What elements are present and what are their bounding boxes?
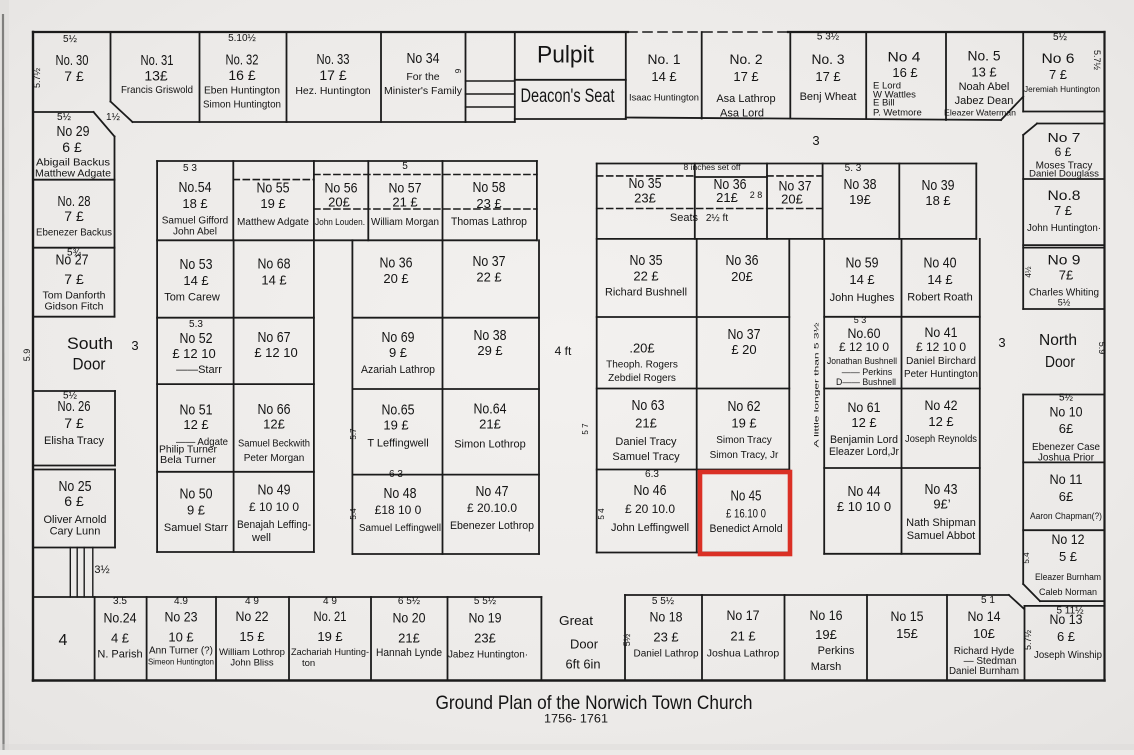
svg-text:Asa Lathrop: Asa Lathrop [716, 93, 775, 105]
svg-text:Oliver Arnold: Oliver Arnold [44, 514, 107, 526]
svg-text:Simon Huntington: Simon Huntington [203, 99, 281, 111]
svg-text:Great: Great [559, 613, 593, 628]
svg-text:No 46: No 46 [634, 482, 667, 499]
svg-text:Simon Lothrop: Simon Lothrop [454, 438, 526, 450]
svg-text:Bela Turner: Bela Turner [160, 455, 217, 466]
svg-text:3: 3 [131, 338, 138, 353]
svg-text:5: 5 [402, 161, 408, 172]
svg-text:Samuel Beckwith: Samuel Beckwith [238, 439, 310, 450]
svg-text:14 £: 14 £ [927, 272, 953, 287]
svg-text:No 17: No 17 [727, 607, 760, 623]
svg-text:No. 2: No. 2 [730, 51, 763, 67]
svg-text:No 16: No 16 [810, 607, 843, 623]
svg-text:7£: 7£ [1059, 268, 1074, 283]
svg-text:Robert Roath: Robert Roath [907, 292, 972, 304]
svg-text:5 3½: 5 3½ [817, 32, 840, 43]
svg-text:£ 10 10 0: £ 10 10 0 [837, 499, 891, 514]
svg-text:Caleb Norman: Caleb Norman [1039, 587, 1097, 597]
svg-text:No 37: No 37 [728, 326, 761, 343]
svg-text:21 £: 21 £ [392, 195, 418, 210]
svg-text:Elisha Tracy: Elisha Tracy [44, 435, 104, 447]
svg-text:No.65: No.65 [382, 402, 415, 419]
svg-text:Ebenezer Backus: Ebenezer Backus [36, 227, 112, 239]
svg-text:5.4: 5.4 [349, 508, 358, 520]
svg-text:5 £: 5 £ [1059, 549, 1078, 564]
svg-text:Matthew Adgate: Matthew Adgate [35, 168, 111, 180]
svg-text:Samuel Leffingwell: Samuel Leffingwell [359, 523, 441, 534]
svg-text:Joseph Winship: Joseph Winship [1034, 650, 1102, 661]
svg-text:No 15: No 15 [891, 608, 924, 624]
svg-text:Peter Huntington: Peter Huntington [904, 369, 978, 380]
svg-text:No 23: No 23 [165, 609, 198, 625]
svg-text:16 £: 16 £ [892, 65, 918, 80]
svg-text:Door: Door [570, 637, 599, 652]
svg-text:No. 30: No. 30 [56, 52, 89, 69]
svg-text:2½ ft: 2½ ft [706, 213, 728, 224]
svg-text:7 £: 7 £ [1054, 203, 1073, 218]
svg-text:No 22: No 22 [236, 608, 269, 624]
svg-text:John Huntington·: John Huntington· [1027, 223, 1101, 234]
svg-text:No. 26: No. 26 [58, 398, 91, 415]
svg-text:No 69: No 69 [382, 329, 415, 346]
svg-text:No 62: No 62 [728, 398, 761, 415]
svg-text:10 £: 10 £ [168, 630, 194, 645]
svg-text:£ 20: £ 20 [731, 342, 756, 357]
svg-text:6 3: 6 3 [389, 469, 403, 480]
svg-text:Azariah Lathrop: Azariah Lathrop [361, 364, 435, 376]
svg-text:Theoph. Rogers: Theoph. Rogers [606, 360, 678, 371]
svg-text:John Hughes: John Hughes [830, 292, 895, 304]
svg-text:No 57: No 57 [389, 180, 422, 196]
svg-text:No. 5: No. 5 [968, 48, 1001, 64]
svg-text:£ 20.10.0: £ 20.10.0 [467, 501, 517, 515]
svg-text:20£: 20£ [781, 192, 803, 207]
svg-text:21£: 21£ [716, 190, 738, 205]
svg-text:18 £: 18 £ [182, 196, 208, 211]
svg-text:Asa Lord: Asa Lord [720, 108, 764, 120]
svg-text:No 6: No 6 [1042, 50, 1075, 66]
svg-text:6ft 6in: 6ft 6in [566, 657, 601, 672]
svg-text:17 £: 17 £ [815, 69, 841, 84]
svg-text:Samuel Gifford: Samuel Gifford [162, 216, 229, 227]
svg-text:4½: 4½ [1024, 266, 1033, 277]
svg-text:No 63: No 63 [632, 397, 665, 414]
svg-text:5 3: 5 3 [854, 315, 867, 325]
svg-text:20£: 20£ [328, 195, 350, 210]
svg-text:Ann Turner (?): Ann Turner (?) [149, 646, 213, 657]
svg-text:18 £: 18 £ [925, 193, 951, 208]
svg-text:No 44: No 44 [848, 483, 881, 500]
svg-text:Hannah Lynde: Hannah Lynde [376, 647, 442, 659]
svg-text:Jeremiah Huntington: Jeremiah Huntington [1024, 84, 1100, 94]
svg-text:No 66: No 66 [258, 401, 291, 418]
svg-text:—— Perkins: —— Perkins [842, 367, 893, 377]
svg-text:Gidson Fitch: Gidson Fitch [45, 301, 104, 313]
svg-text:Hez. Huntington: Hez. Huntington [295, 85, 370, 97]
svg-text:No. 1: No. 1 [648, 51, 681, 67]
svg-text:4 9: 4 9 [245, 596, 259, 607]
svg-text:14 £: 14 £ [849, 272, 875, 287]
svg-text:No.64: No.64 [474, 401, 507, 418]
svg-text:Daniel Birchard: Daniel Birchard [906, 356, 976, 367]
svg-text:Nath Shipman: Nath Shipman [906, 517, 976, 529]
svg-text:4 £: 4 £ [111, 631, 130, 646]
svg-text:P. Wetmore: P. Wetmore [873, 108, 922, 119]
svg-text:John Abel: John Abel [173, 227, 217, 238]
svg-text:4 9: 4 9 [323, 596, 337, 607]
svg-text:No 68: No 68 [258, 256, 291, 273]
svg-text:.20£: .20£ [629, 341, 655, 356]
svg-text:No 39: No 39 [922, 177, 955, 194]
svg-text:14 £: 14 £ [651, 69, 677, 84]
svg-text:6£: 6£ [1059, 421, 1074, 436]
svg-text:21£: 21£ [635, 416, 657, 431]
svg-text:5½: 5½ [1058, 298, 1071, 308]
svg-text:Simon Tracy: Simon Tracy [716, 435, 772, 446]
svg-text:Eleazer Burnham: Eleazer Burnham [1035, 572, 1101, 582]
svg-text:No 36: No 36 [380, 255, 413, 272]
svg-text:——Starr: ——Starr [176, 364, 222, 376]
svg-text:£ 20 10.0: £ 20 10.0 [625, 502, 675, 516]
svg-text:6£: 6£ [1059, 489, 1074, 504]
svg-text:Simon Tracy, Jr: Simon Tracy, Jr [710, 450, 779, 461]
svg-text:No 47: No 47 [476, 483, 509, 500]
svg-text:9 £: 9 £ [187, 502, 206, 517]
svg-text:7 £: 7 £ [64, 68, 84, 84]
svg-text:£18 10 0: £18 10 0 [375, 503, 422, 517]
svg-text:12 £: 12 £ [183, 417, 209, 432]
svg-text:No 51: No 51 [180, 402, 213, 419]
svg-text:No.8: No.8 [1048, 187, 1081, 203]
svg-text:No 35: No 35 [630, 252, 663, 269]
svg-text:19 £: 19 £ [731, 416, 757, 431]
svg-text:A little longer than 5 3½: A little longer than 5 3½ [813, 321, 821, 447]
svg-text:3.5: 3.5 [113, 596, 127, 607]
svg-text:Thomas Lathrop: Thomas Lathrop [451, 216, 527, 228]
svg-text:14 £: 14 £ [261, 273, 287, 288]
svg-text:14 £: 14 £ [183, 273, 209, 288]
svg-text:9: 9 [454, 68, 463, 73]
svg-text:21£: 21£ [398, 631, 420, 646]
svg-text:£ 12 10: £ 12 10 [254, 345, 297, 360]
svg-text:7 £: 7 £ [64, 208, 84, 224]
svg-text:15£: 15£ [896, 626, 918, 641]
svg-text:No 11: No 11 [1050, 471, 1083, 487]
svg-text:South: South [67, 334, 113, 353]
svg-text:No 29: No 29 [57, 123, 90, 140]
svg-text:Zachariah Hunting-: Zachariah Hunting- [291, 647, 369, 658]
svg-text:3½: 3½ [94, 564, 109, 576]
svg-text:Marsh: Marsh [811, 661, 842, 673]
svg-text:20 £: 20 £ [383, 271, 409, 286]
svg-text:Jonathan Bushnell: Jonathan Bushnell [827, 356, 897, 366]
svg-text:12 £: 12 £ [851, 415, 877, 430]
svg-text:No 27: No 27 [56, 252, 89, 269]
svg-text:Ebenezer Case: Ebenezer Case [1032, 442, 1100, 453]
svg-text:5.7½: 5.7½ [1023, 630, 1033, 651]
svg-text:23 £: 23 £ [476, 196, 502, 211]
svg-text:No. 21: No. 21 [314, 608, 347, 624]
svg-text:£ 10 10 0: £ 10 10 0 [249, 500, 299, 514]
svg-text:Simeon Huntington: Simeon Huntington [148, 658, 214, 667]
svg-text:5.7: 5.7 [349, 428, 358, 440]
svg-text:5 1: 5 1 [981, 595, 995, 606]
svg-text:No 41: No 41 [925, 324, 958, 340]
svg-text:Zebdiel Rogers: Zebdiel Rogers [608, 373, 676, 384]
svg-text:6 £: 6 £ [62, 139, 82, 155]
svg-text:6 5½: 6 5½ [398, 596, 421, 607]
svg-text:John Leffingwell: John Leffingwell [611, 522, 689, 534]
svg-text:5.9: 5.9 [22, 349, 32, 362]
svg-text:Philip Turner: Philip Turner [159, 445, 218, 456]
svg-text:No 53: No 53 [180, 256, 213, 273]
svg-text:No 67: No 67 [258, 329, 291, 346]
svg-text:Door: Door [73, 355, 106, 374]
svg-text:No 61: No 61 [848, 399, 881, 415]
svg-text:5.7½: 5.7½ [32, 68, 42, 89]
svg-text:5.10½: 5.10½ [228, 33, 256, 44]
svg-text:Tom Carew: Tom Carew [164, 292, 220, 304]
svg-text:23£: 23£ [634, 191, 656, 206]
svg-text:No 42: No 42 [925, 397, 958, 413]
svg-text:No 52: No 52 [180, 330, 213, 347]
svg-text:No 38: No 38 [474, 327, 507, 344]
svg-text:29 £: 29 £ [477, 343, 503, 358]
svg-text:Daniel Lathrop: Daniel Lathrop [633, 649, 698, 660]
svg-text:Minister's Family: Minister's Family [384, 85, 463, 97]
svg-text:5.4: 5.4 [1022, 552, 1031, 564]
svg-text:21 £: 21 £ [730, 629, 756, 644]
svg-text:well: well [251, 532, 271, 544]
svg-text:6 £: 6 £ [1057, 629, 1076, 644]
svg-text:Cary Lunn: Cary Lunn [50, 526, 101, 538]
svg-text:19 £: 19 £ [260, 196, 286, 211]
svg-text:6 £: 6 £ [1055, 145, 1072, 159]
svg-text:Aaron Chapman(?): Aaron Chapman(?) [1030, 511, 1102, 521]
svg-text:Deacon's Seat: Deacon's Seat [521, 86, 616, 107]
svg-text:4.9: 4.9 [174, 596, 188, 607]
svg-text:9 £: 9 £ [389, 345, 408, 360]
svg-text:5 3: 5 3 [183, 163, 197, 174]
svg-text:Benedict Arnold: Benedict Arnold [710, 523, 783, 535]
svg-text:For the: For the [406, 71, 439, 83]
svg-text:Benj Wheat: Benj Wheat [800, 91, 857, 103]
svg-text:No 14: No 14 [968, 608, 1001, 624]
svg-text:No.54: No.54 [179, 179, 212, 196]
svg-text:No 37: No 37 [473, 253, 506, 270]
svg-text:5 5½: 5 5½ [474, 596, 497, 607]
svg-text:17 £: 17 £ [319, 67, 346, 83]
svg-text:5.9: 5.9 [1097, 342, 1107, 355]
svg-text:5½: 5½ [1053, 32, 1068, 43]
svg-text:5 4: 5 4 [597, 508, 606, 520]
svg-text:22 £: 22 £ [633, 269, 659, 284]
svg-text:Door: Door [1045, 354, 1075, 371]
svg-text:Ebenezer Lothrop: Ebenezer Lothrop [450, 520, 534, 532]
svg-text:Isaac Huntington: Isaac Huntington [629, 93, 699, 104]
svg-text:No 34: No 34 [407, 51, 440, 67]
svg-text:£ 12 10 0: £ 12 10 0 [839, 340, 889, 354]
svg-text:15 £: 15 £ [239, 629, 265, 644]
svg-text:Samuel Tracy: Samuel Tracy [612, 451, 680, 463]
svg-text:No 40: No 40 [924, 255, 957, 272]
svg-text:Francis Griswold: Francis Griswold [121, 84, 193, 96]
svg-text:£ 16.10 0: £ 16.10 0 [726, 507, 766, 521]
svg-text:Daniel Burnham: Daniel Burnham [949, 666, 1019, 677]
svg-text:Seats: Seats [670, 212, 699, 224]
svg-text:Samuel Abbot: Samuel Abbot [907, 530, 976, 542]
svg-text:£ 12 10: £ 12 10 [172, 346, 215, 361]
svg-text:Joshua Lathrop: Joshua Lathrop [707, 648, 780, 660]
svg-text:No 50: No 50 [180, 485, 213, 502]
svg-text:£ 12 10 0: £ 12 10 0 [916, 340, 966, 354]
svg-text:Pulpit: Pulpit [537, 42, 594, 69]
svg-text:8 inches set off: 8 inches set off [683, 162, 741, 172]
svg-text:No 38: No 38 [844, 176, 877, 193]
svg-text:No 12: No 12 [1052, 531, 1085, 547]
svg-text:7 £: 7 £ [1049, 67, 1068, 82]
svg-text:5. 3: 5. 3 [845, 163, 862, 174]
svg-text:3: 3 [812, 133, 819, 148]
svg-text:T Leffingwell: T Leffingwell [367, 438, 428, 450]
svg-text:Eleazer Waterman: Eleazer Waterman [944, 108, 1016, 118]
svg-text:4: 4 [59, 632, 68, 649]
svg-text:Richard Bushnell: Richard Bushnell [605, 287, 687, 299]
svg-text:5½: 5½ [63, 34, 78, 45]
svg-text:Daniel Douglass: Daniel Douglass [1029, 169, 1099, 180]
svg-text:John Louden.: John Louden. [315, 217, 365, 227]
svg-text:William Lothrop: William Lothrop [219, 647, 285, 658]
svg-text:ton: ton [302, 658, 315, 669]
svg-text:No 36: No 36 [726, 252, 759, 269]
svg-text:No 7: No 7 [1048, 130, 1081, 145]
svg-text:Perkins: Perkins [818, 645, 855, 657]
svg-text:No 9: No 9 [1048, 252, 1081, 268]
svg-text:No 19: No 19 [469, 610, 502, 626]
svg-text:No 45: No 45 [731, 488, 762, 505]
svg-text:No 59: No 59 [846, 255, 879, 272]
svg-text:Eleazer Lord,Jr: Eleazer Lord,Jr [829, 446, 899, 458]
svg-text:Jabez Dean: Jabez Dean [955, 95, 1014, 107]
svg-text:Benajah Leffing-: Benajah Leffing- [237, 519, 311, 531]
svg-text:N. Parish: N. Parish [97, 649, 142, 661]
svg-text:Joseph Reynolds: Joseph Reynolds [905, 433, 977, 445]
svg-text:9£’: 9£’ [933, 497, 950, 512]
svg-text:No 18: No 18 [650, 609, 683, 625]
svg-text:No.60: No.60 [848, 325, 881, 341]
svg-text:6.3: 6.3 [645, 469, 659, 480]
svg-text:Matthew Adgate: Matthew Adgate [237, 217, 309, 228]
svg-text:Jabez Huntington·: Jabez Huntington· [448, 650, 528, 661]
svg-text:23 £: 23 £ [653, 630, 679, 645]
svg-text:No 20: No 20 [393, 610, 426, 626]
svg-text:North: North [1039, 332, 1077, 349]
svg-text:5½: 5½ [57, 112, 72, 123]
svg-text:7 £: 7 £ [64, 271, 84, 287]
svg-text:5.7½: 5.7½ [1092, 50, 1102, 71]
svg-text:No 10: No 10 [1050, 404, 1083, 420]
svg-text:5 7: 5 7 [581, 423, 590, 435]
svg-text:10£: 10£ [973, 626, 995, 641]
svg-text:19£: 19£ [849, 192, 871, 207]
svg-text:No 58: No 58 [473, 179, 506, 196]
svg-text:No 49: No 49 [258, 481, 291, 498]
svg-text:John Bliss: John Bliss [230, 658, 274, 669]
svg-text:7 £: 7 £ [64, 415, 84, 431]
svg-text:1½: 1½ [106, 112, 121, 123]
svg-text:No 13: No 13 [1050, 611, 1083, 627]
svg-text:5½: 5½ [622, 633, 632, 646]
svg-text:William Morgan: William Morgan [371, 217, 439, 228]
svg-text:6 £: 6 £ [64, 493, 84, 509]
svg-text:No 48: No 48 [384, 485, 417, 502]
svg-text:23£: 23£ [474, 631, 496, 646]
svg-text:No 4: No 4 [888, 49, 921, 65]
svg-text:19 £: 19 £ [317, 629, 343, 644]
svg-text:12 £: 12 £ [928, 414, 954, 429]
svg-text:19£: 19£ [815, 627, 837, 642]
svg-text:21£: 21£ [479, 417, 501, 432]
svg-text:2 8: 2 8 [750, 190, 763, 200]
svg-text:No 55: No 55 [257, 180, 290, 197]
svg-text:No 56: No 56 [325, 180, 358, 196]
svg-text:4 ft: 4 ft [555, 344, 572, 358]
svg-text:Benjamin Lord: Benjamin Lord [830, 434, 898, 446]
svg-text:No. 3: No. 3 [812, 51, 845, 67]
svg-text:No 43: No 43 [925, 481, 958, 498]
svg-text:16 £: 16 £ [228, 67, 255, 83]
svg-text:Peter Morgan: Peter Morgan [244, 453, 305, 464]
svg-text:13 £: 13 £ [971, 65, 997, 80]
svg-text:20£: 20£ [731, 269, 753, 284]
svg-text:22 £: 22 £ [476, 270, 502, 285]
svg-text:Samuel Starr: Samuel Starr [164, 522, 229, 534]
svg-text:Joshua Prior: Joshua Prior [1038, 453, 1095, 464]
svg-text:Noah Abel: Noah Abel [959, 81, 1010, 93]
svg-text:Eben Huntington: Eben Huntington [204, 85, 280, 97]
svg-text:1756- 1761: 1756- 1761 [544, 712, 608, 726]
svg-text:Daniel Tracy: Daniel Tracy [615, 436, 677, 448]
svg-text:19 £: 19 £ [383, 418, 409, 433]
svg-text:5½: 5½ [1059, 393, 1074, 404]
svg-text:5.3: 5.3 [189, 319, 203, 330]
svg-text:13£: 13£ [144, 68, 168, 84]
svg-text:5 5½: 5 5½ [652, 596, 675, 607]
svg-text:17 £: 17 £ [733, 69, 759, 84]
svg-text:No. 33: No. 33 [317, 52, 350, 68]
svg-text:3: 3 [998, 335, 1005, 350]
svg-text:No.24: No.24 [104, 610, 137, 626]
svg-text:D—— Bushnell: D—— Bushnell [836, 377, 896, 387]
svg-text:12£: 12£ [263, 417, 285, 432]
svg-text:No 35: No 35 [629, 175, 662, 192]
